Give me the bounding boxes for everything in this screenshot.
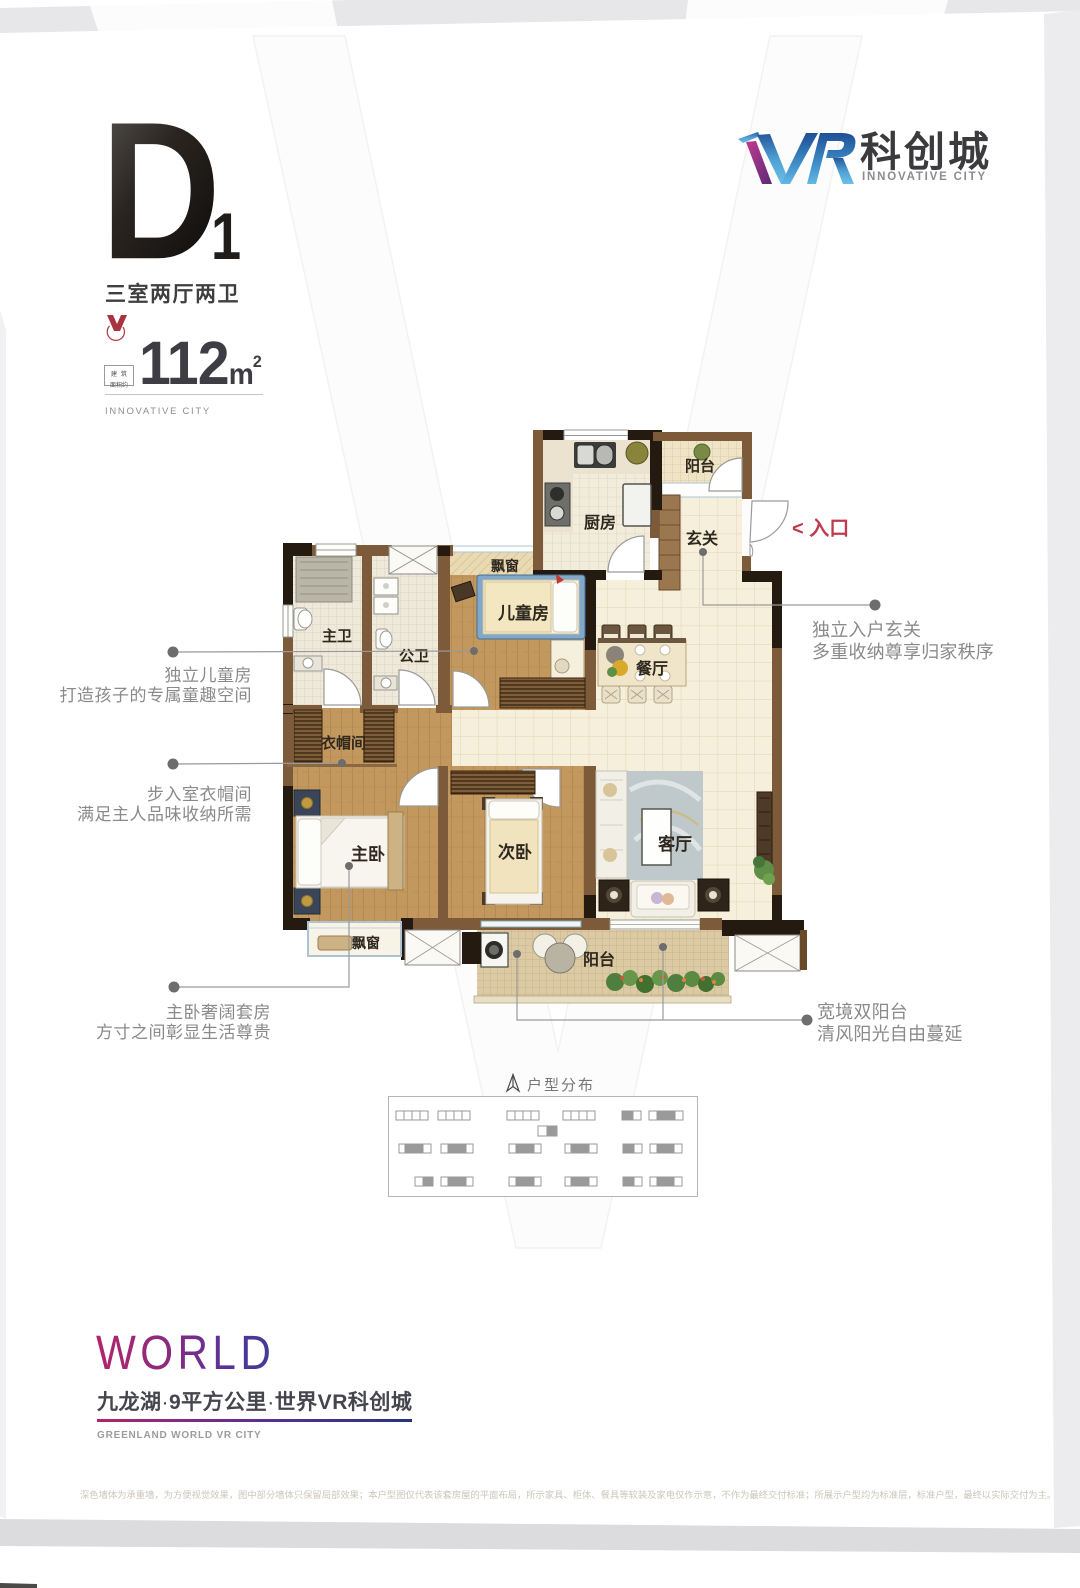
svg-text:飘窗: 飘窗 [352,935,380,951]
svg-text:厨房: 厨房 [584,513,616,532]
svg-text:衣帽间: 衣帽间 [321,734,366,752]
svg-text:玄关: 玄关 [686,529,718,548]
svg-text:主卧: 主卧 [351,844,385,864]
svg-text:餐厅: 餐厅 [635,659,668,678]
svg-text:公卫: 公卫 [399,648,429,665]
svg-text:< 入口: < 入口 [792,517,849,540]
svg-text:飘窗: 飘窗 [491,558,519,574]
svg-text:次卧: 次卧 [498,842,532,862]
svg-text:主卫: 主卫 [322,627,352,645]
svg-text:阳台: 阳台 [685,457,715,475]
svg-text:儿童房: 儿童房 [497,603,549,623]
svg-text:阳台: 阳台 [583,950,615,969]
svg-text:客厅: 客厅 [657,834,692,854]
